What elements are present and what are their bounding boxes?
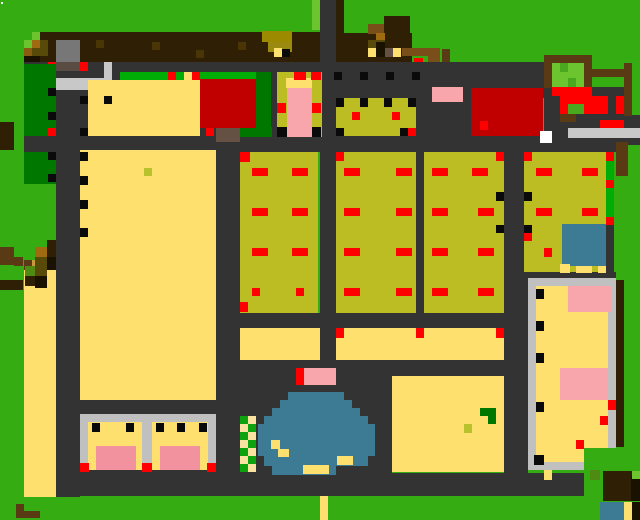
west-lane bbox=[24, 266, 56, 497]
map-pixel bbox=[142, 463, 152, 472]
map-pixel bbox=[582, 208, 598, 216]
path-gap bbox=[320, 496, 328, 520]
map-pixel bbox=[552, 87, 592, 96]
map-pixel bbox=[616, 142, 628, 176]
map-pixel bbox=[336, 152, 344, 161]
map-pixel bbox=[536, 168, 552, 176]
map-pixel bbox=[80, 128, 88, 136]
map-pixel bbox=[48, 174, 56, 182]
map-pixel bbox=[296, 288, 304, 296]
map-pixel bbox=[496, 192, 504, 201]
map-pixel bbox=[184, 72, 192, 80]
checkered-stall bbox=[248, 464, 256, 472]
map-pixel bbox=[252, 168, 268, 176]
map-pixel bbox=[524, 192, 532, 201]
pond bbox=[264, 416, 368, 424]
map-pixel bbox=[80, 228, 88, 237]
map-pixel bbox=[376, 48, 385, 57]
map-pixel bbox=[104, 96, 112, 104]
door bbox=[96, 446, 136, 470]
map-pixel bbox=[80, 200, 88, 209]
map-pixel bbox=[48, 128, 56, 136]
stable-roof bbox=[287, 88, 312, 137]
map-pixel bbox=[536, 353, 544, 363]
pink-stand bbox=[304, 368, 336, 385]
map-pixel bbox=[534, 455, 544, 465]
map-pixel bbox=[496, 328, 504, 338]
map-pixel bbox=[606, 161, 614, 180]
window bbox=[156, 423, 164, 432]
map-pixel bbox=[540, 131, 552, 143]
map-pixel bbox=[292, 168, 308, 176]
map-pixel bbox=[560, 264, 570, 273]
map-pixel bbox=[360, 98, 368, 107]
map-pixel bbox=[536, 402, 544, 412]
map-pixel bbox=[0, 122, 14, 150]
map-pixel bbox=[472, 168, 488, 176]
map-pixel bbox=[278, 449, 289, 457]
map-pixel bbox=[80, 62, 88, 71]
map-pixel bbox=[496, 225, 504, 233]
map-pixel bbox=[80, 176, 88, 185]
map-pixel bbox=[396, 288, 412, 296]
checkered-stall bbox=[240, 456, 248, 464]
map-pixel bbox=[80, 96, 88, 104]
map-pixel bbox=[412, 72, 420, 80]
map-pixel bbox=[432, 248, 448, 256]
map-pixel bbox=[334, 72, 342, 80]
checkered-stall bbox=[248, 416, 256, 424]
map-pixel bbox=[35, 247, 47, 257]
map-pixel bbox=[408, 128, 416, 136]
map-pixel bbox=[392, 112, 400, 120]
map-pixel bbox=[632, 502, 640, 520]
map-pixel bbox=[271, 440, 280, 449]
map-pixel bbox=[544, 248, 552, 257]
map-pixel bbox=[277, 127, 287, 137]
map-pixel bbox=[496, 152, 504, 161]
map-pixel bbox=[344, 248, 360, 256]
map-pixel bbox=[35, 276, 47, 288]
map-pixel bbox=[576, 440, 584, 449]
map-pixel bbox=[294, 72, 306, 80]
map-pixel bbox=[396, 248, 412, 256]
map-pixel bbox=[400, 128, 408, 136]
map-pixel bbox=[416, 328, 424, 338]
map-pixel bbox=[16, 504, 24, 518]
map-pixel bbox=[196, 50, 204, 58]
pond bbox=[288, 392, 344, 400]
map-pixel bbox=[274, 48, 282, 57]
window bbox=[126, 423, 134, 432]
map-pixel bbox=[262, 31, 292, 42]
checkered-stall bbox=[240, 416, 248, 424]
map-pixel bbox=[478, 288, 494, 296]
map-pixel bbox=[524, 152, 532, 161]
map-pixel bbox=[24, 40, 32, 48]
doorway bbox=[216, 128, 240, 142]
map-pixel bbox=[606, 180, 614, 188]
pond bbox=[280, 400, 352, 408]
fence-post bbox=[624, 63, 632, 116]
map-pixel bbox=[48, 88, 56, 96]
map-pixel bbox=[344, 168, 360, 176]
map-pixel bbox=[252, 208, 268, 216]
map-pixel bbox=[256, 72, 271, 128]
map-pixel bbox=[0, 247, 14, 265]
map-pixel bbox=[312, 103, 321, 113]
red-building bbox=[200, 79, 256, 128]
map-pixel bbox=[47, 257, 56, 270]
door bbox=[160, 446, 200, 470]
checkered-stall bbox=[240, 424, 248, 432]
map-pixel bbox=[32, 40, 40, 48]
map-pixel bbox=[56, 62, 80, 71]
map-pixel bbox=[608, 400, 616, 410]
roof bbox=[568, 286, 612, 312]
road bbox=[416, 152, 424, 313]
map-pixel bbox=[32, 32, 40, 40]
map-pixel bbox=[576, 266, 592, 273]
map-pixel bbox=[632, 471, 640, 479]
map-pixel bbox=[408, 98, 416, 107]
checkered-stall bbox=[240, 464, 248, 472]
map-pixel bbox=[600, 120, 624, 128]
road bbox=[24, 473, 584, 496]
map-pixel bbox=[207, 463, 216, 472]
map-pixel bbox=[568, 78, 576, 87]
map-pixel bbox=[336, 328, 344, 338]
map-pixel bbox=[252, 288, 260, 296]
map-pixel bbox=[104, 62, 112, 78]
map-pixel bbox=[352, 112, 360, 120]
map-pixel bbox=[385, 48, 393, 57]
map-pixel bbox=[536, 289, 544, 299]
map-pixel bbox=[277, 103, 286, 113]
map-pixel bbox=[616, 280, 624, 447]
window bbox=[199, 423, 207, 432]
map-pixel bbox=[296, 368, 304, 385]
map-pixel bbox=[432, 288, 448, 296]
map-pixel bbox=[396, 208, 412, 216]
map-pixel bbox=[206, 128, 214, 136]
north-yard bbox=[88, 80, 200, 136]
map-pixel bbox=[536, 208, 552, 216]
map-pixel bbox=[480, 121, 488, 130]
map-pixel bbox=[560, 63, 568, 72]
map-pixel bbox=[303, 465, 329, 474]
map-pixel bbox=[432, 168, 448, 176]
map-pixel bbox=[480, 408, 496, 416]
map-pixel bbox=[544, 63, 552, 88]
pond bbox=[272, 408, 360, 416]
map-pixel bbox=[240, 152, 250, 162]
map-pixel bbox=[590, 470, 600, 480]
road bbox=[240, 360, 504, 376]
map-pixel bbox=[396, 168, 412, 176]
map-pixel bbox=[24, 511, 40, 518]
map-pixel bbox=[544, 470, 552, 480]
market-square bbox=[392, 376, 504, 472]
map-pixel bbox=[478, 248, 494, 256]
map-pixel bbox=[598, 266, 606, 273]
map-pixel bbox=[80, 152, 88, 161]
map-pixel bbox=[238, 42, 246, 50]
farm-map[interactable] bbox=[0, 0, 640, 520]
window bbox=[393, 48, 401, 57]
map-pixel bbox=[35, 257, 47, 266]
map-pixel bbox=[624, 502, 632, 520]
map-pixel bbox=[1, 2, 3, 4]
pink-building bbox=[432, 87, 463, 102]
map-pixel bbox=[14, 257, 23, 266]
map-pixel bbox=[80, 463, 89, 472]
map-pixel bbox=[432, 208, 448, 216]
checkered-stall bbox=[248, 448, 256, 456]
window bbox=[177, 423, 185, 432]
map-pixel bbox=[606, 152, 614, 161]
checkered-stall bbox=[248, 456, 256, 464]
map-pixel bbox=[478, 208, 494, 216]
checkered-stall bbox=[248, 432, 256, 440]
window bbox=[92, 423, 100, 432]
checkered-stall bbox=[248, 440, 256, 448]
map-pixel bbox=[582, 168, 598, 176]
map-pixel bbox=[568, 104, 584, 114]
map-pixel bbox=[337, 456, 353, 465]
map-pixel bbox=[40, 40, 48, 48]
map-pixel bbox=[0, 280, 23, 290]
checkered-stall bbox=[240, 440, 248, 448]
map-pixel bbox=[584, 55, 592, 88]
tree-column bbox=[336, 0, 344, 33]
map-pixel bbox=[24, 48, 32, 56]
map-pixel bbox=[631, 476, 640, 501]
map-pixel bbox=[252, 248, 268, 256]
checkered-stall bbox=[240, 448, 248, 456]
stall-row bbox=[240, 328, 320, 360]
map-pixel bbox=[524, 225, 532, 233]
map-pixel bbox=[192, 72, 200, 80]
hedge bbox=[24, 64, 56, 136]
checkered-stall bbox=[248, 424, 256, 432]
map-pixel bbox=[25, 276, 35, 286]
map-pixel bbox=[336, 98, 344, 107]
map-pixel bbox=[536, 321, 544, 331]
map-pixel bbox=[47, 240, 56, 257]
map-pixel bbox=[606, 217, 614, 225]
map-pixel bbox=[336, 128, 344, 136]
map-pixel bbox=[384, 98, 392, 107]
map-pixel bbox=[524, 233, 532, 241]
map-pixel bbox=[386, 72, 394, 80]
map-pixel bbox=[560, 114, 576, 122]
map-pixel bbox=[25, 266, 35, 276]
map-pixel bbox=[240, 302, 248, 312]
map-pixel bbox=[48, 152, 56, 160]
map-pixel bbox=[168, 72, 176, 80]
paved-path bbox=[568, 128, 640, 138]
map-pixel bbox=[282, 49, 290, 57]
map-pixel bbox=[32, 48, 48, 56]
water bbox=[600, 502, 624, 520]
map-pixel bbox=[35, 266, 47, 276]
map-pixel bbox=[344, 288, 360, 296]
map-pixel bbox=[616, 96, 624, 114]
window bbox=[368, 48, 376, 57]
map-pixel bbox=[606, 225, 614, 272]
map-pixel bbox=[488, 416, 496, 424]
checkered-stall bbox=[240, 432, 248, 440]
map-pixel bbox=[606, 188, 614, 217]
light-grass bbox=[312, 0, 320, 30]
water-trough bbox=[562, 224, 606, 266]
map-pixel bbox=[292, 248, 308, 256]
map-pixel bbox=[311, 72, 321, 80]
main-yard bbox=[80, 150, 216, 400]
map-pixel bbox=[360, 72, 368, 80]
map-pixel bbox=[144, 168, 152, 176]
shed bbox=[56, 40, 80, 62]
map-pixel bbox=[600, 416, 608, 425]
map-pixel bbox=[48, 112, 56, 120]
map-pixel bbox=[464, 424, 472, 433]
map-pixel bbox=[152, 42, 160, 50]
map-pixel bbox=[292, 208, 308, 216]
map-pixel bbox=[344, 208, 360, 216]
roof bbox=[560, 368, 608, 400]
dirt-path bbox=[402, 48, 440, 56]
map-pixel bbox=[96, 40, 104, 48]
map-pixel bbox=[312, 127, 321, 137]
